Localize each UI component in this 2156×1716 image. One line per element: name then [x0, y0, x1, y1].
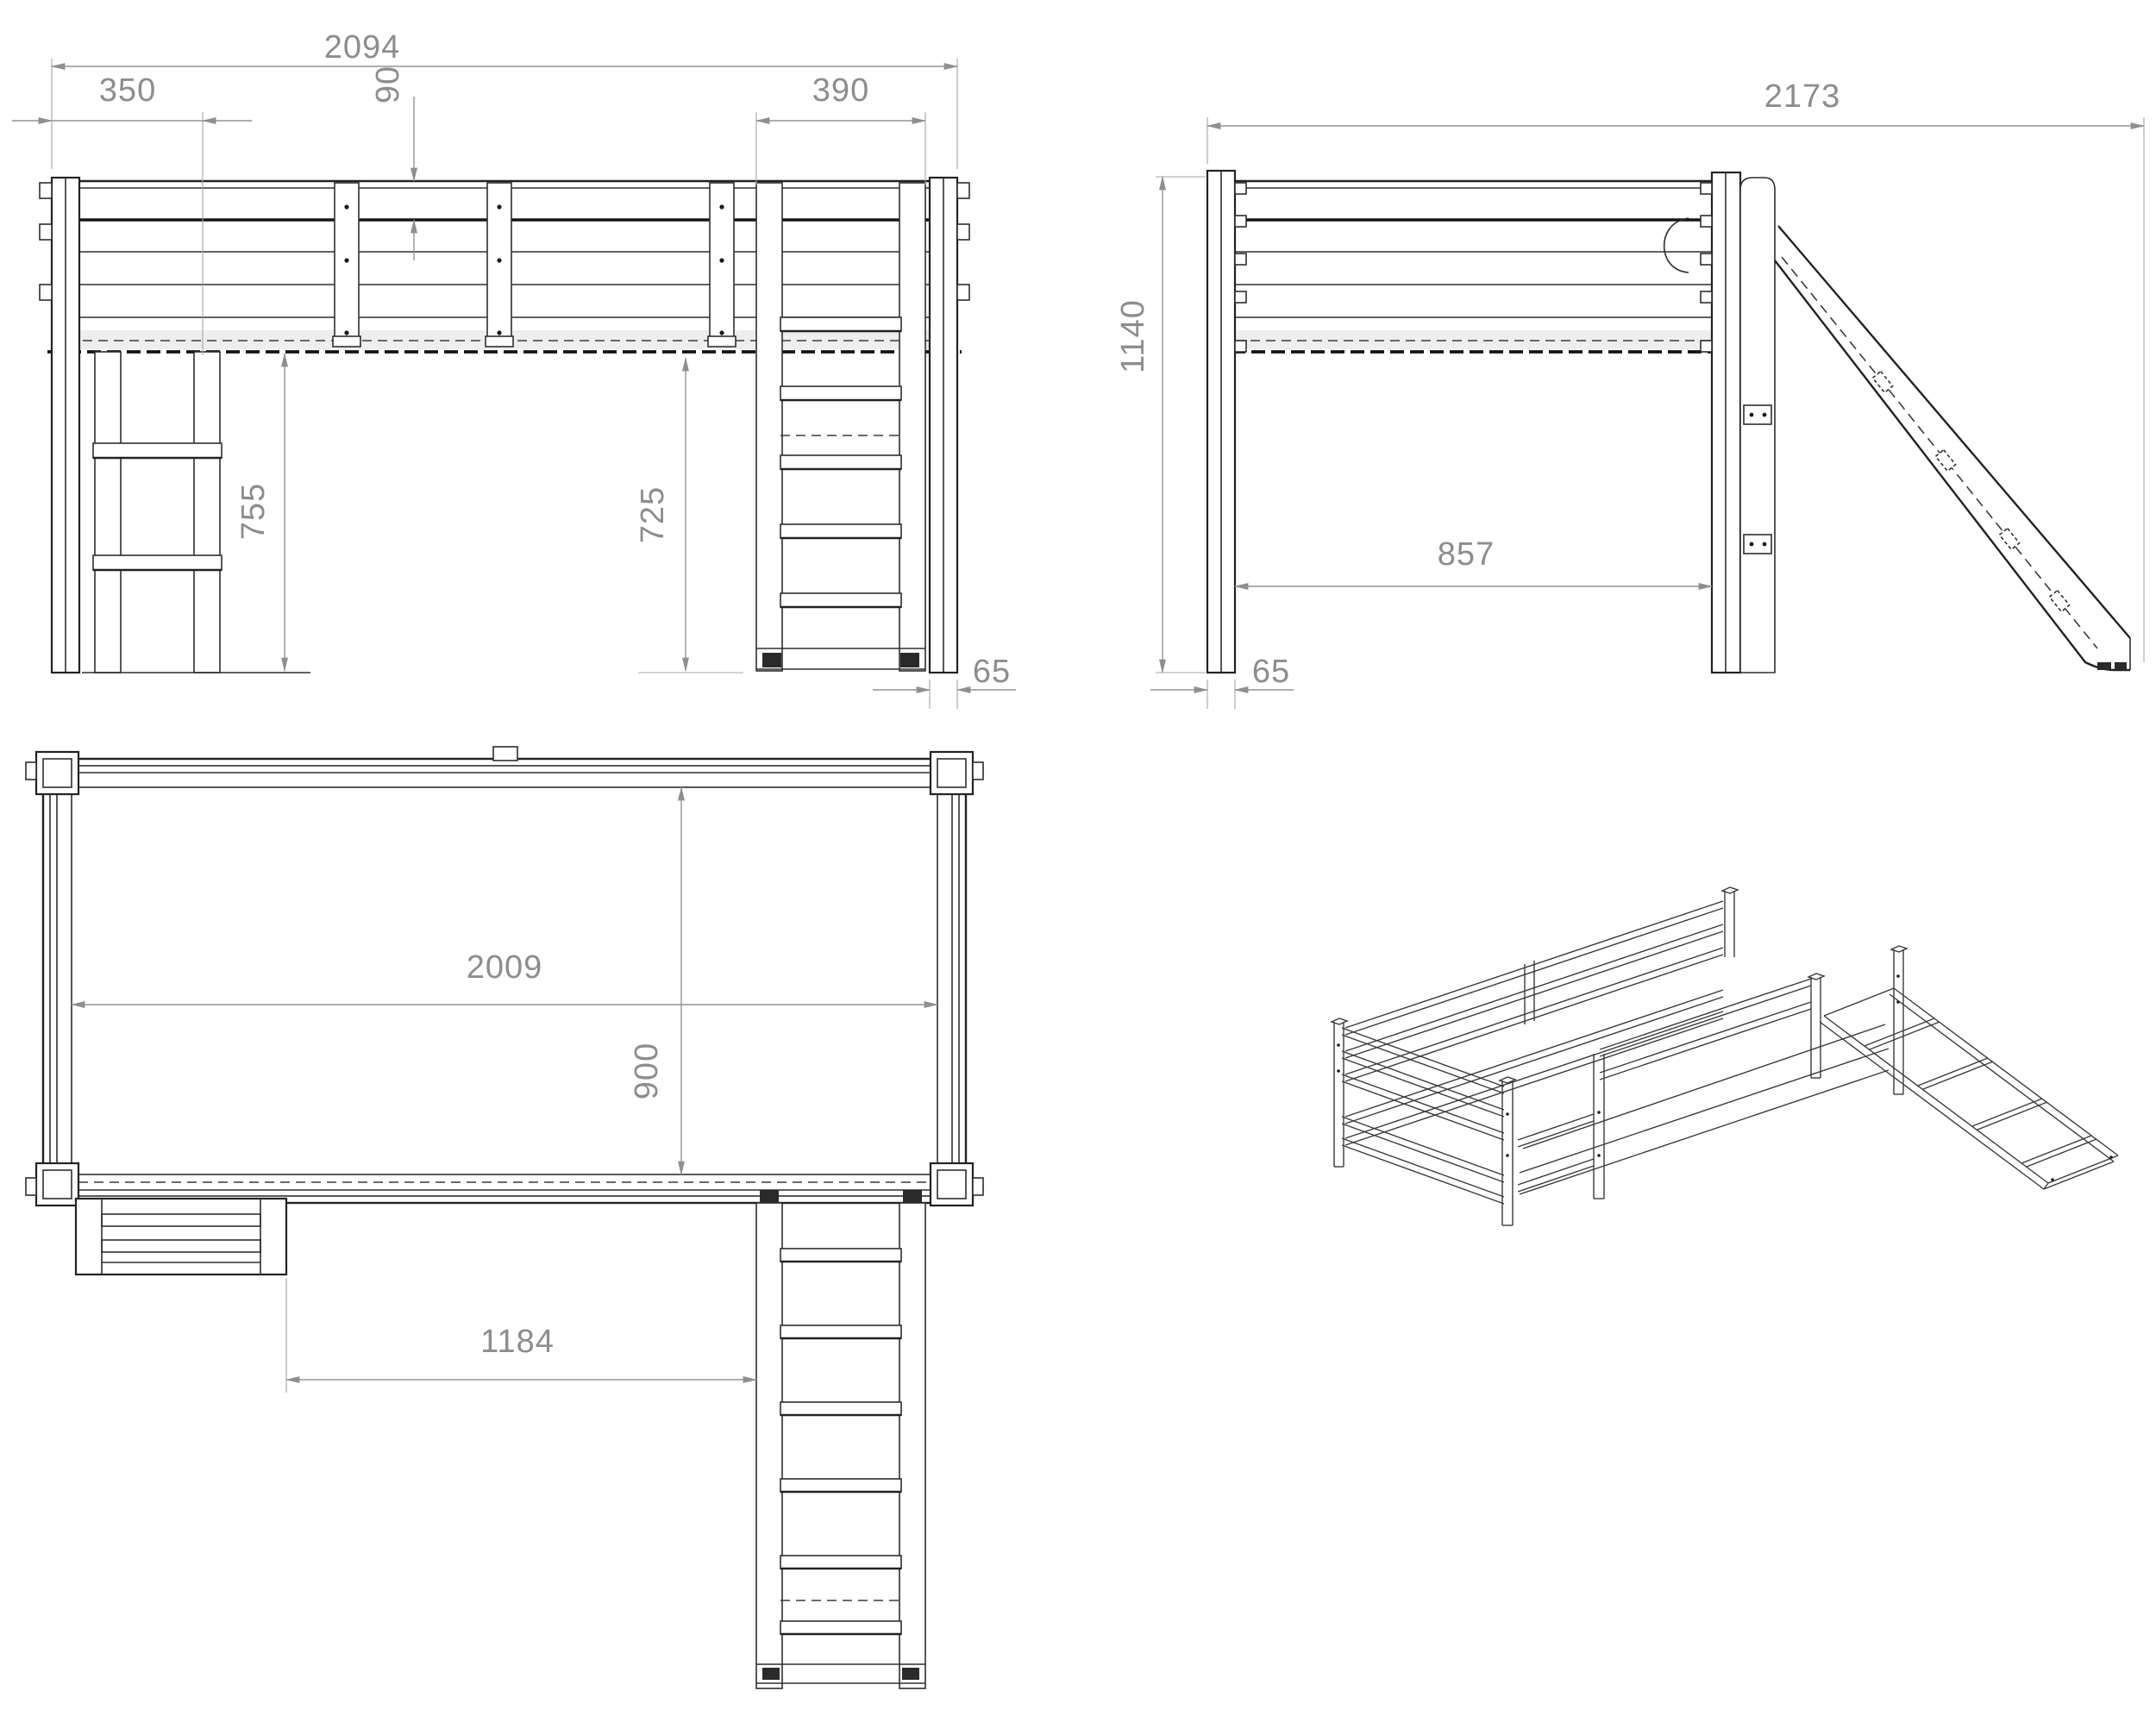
- dim-label-rail-drop: 90: [370, 66, 406, 103]
- iso-slide: [1820, 988, 2118, 1189]
- dim-side-overall-length: 2173: [1207, 78, 2144, 662]
- dim-label-inner-width: 900: [629, 1043, 665, 1099]
- dim-label-ladder-offset: 350: [99, 72, 156, 109]
- dim-label-overall-length: 2173: [1764, 78, 1841, 115]
- bed-post-left: [40, 178, 79, 673]
- dim-front-rail-drop: 90: [370, 66, 414, 260]
- dim-label-post-width-side: 65: [1252, 654, 1290, 690]
- ladder-plan-view: [76, 1199, 286, 1274]
- iso-left-guard-rails: [1342, 1028, 1504, 1204]
- side-elevation-view: 2173 1140 857 65: [1115, 78, 2144, 709]
- dim-front-clearance-left: 755: [235, 354, 285, 671]
- ladder-front-view: [82, 352, 310, 673]
- front-elevation-view: 2094 350 90 390 755 725: [12, 29, 1016, 709]
- dim-plan-inner-length: 2009: [72, 949, 937, 1005]
- dim-label-inner-depth: 857: [1438, 536, 1495, 573]
- rail-support: [486, 183, 513, 347]
- slide-plan-view: [756, 1190, 925, 1688]
- dim-side-inner-depth: 857: [1235, 536, 1712, 586]
- iso-front-platform: [1520, 1024, 1889, 1194]
- dim-front-slide-width: 390: [756, 72, 925, 185]
- rail-support: [333, 183, 360, 347]
- side-post-right: [1701, 172, 1775, 673]
- slide-side-view: [1775, 226, 2130, 670]
- dim-side-overall-height: 1140: [1115, 177, 1206, 673]
- bed-post-right: [930, 178, 969, 673]
- dim-plan-ladder-to-slide: 1184: [286, 1278, 756, 1393]
- technical-drawing-canvas: 2094 350 90 390 755 725: [0, 0, 2156, 1716]
- dim-label-post-width-front: 65: [973, 654, 1011, 690]
- dim-front-ladder-offset: 350: [12, 72, 252, 355]
- dim-front-clearance-right: 725: [635, 358, 743, 673]
- dim-plan-inner-width: 900: [629, 787, 681, 1174]
- top-plan-view: 2009 900 1184: [26, 747, 983, 1688]
- dim-label-clearance-right: 725: [635, 486, 671, 543]
- iso-back-guard-rails: [1345, 901, 1723, 1145]
- dim-label-slide-width: 390: [812, 72, 869, 109]
- dim-label-overall-height: 1140: [1115, 299, 1151, 373]
- rail-support: [708, 183, 736, 347]
- side-post-left: [1207, 171, 1246, 673]
- dim-label-inner-length: 2009: [467, 949, 543, 986]
- dim-label-ladder-to-slide: 1184: [480, 1324, 555, 1360]
- isometric-view: [1332, 887, 2118, 1225]
- drawing-sheet: 2094 350 90 390 755 725: [0, 0, 2156, 1716]
- dim-label-overall-width: 2094: [324, 29, 401, 66]
- slide-front-view: [756, 183, 925, 671]
- dim-label-clearance-left: 755: [235, 483, 272, 540]
